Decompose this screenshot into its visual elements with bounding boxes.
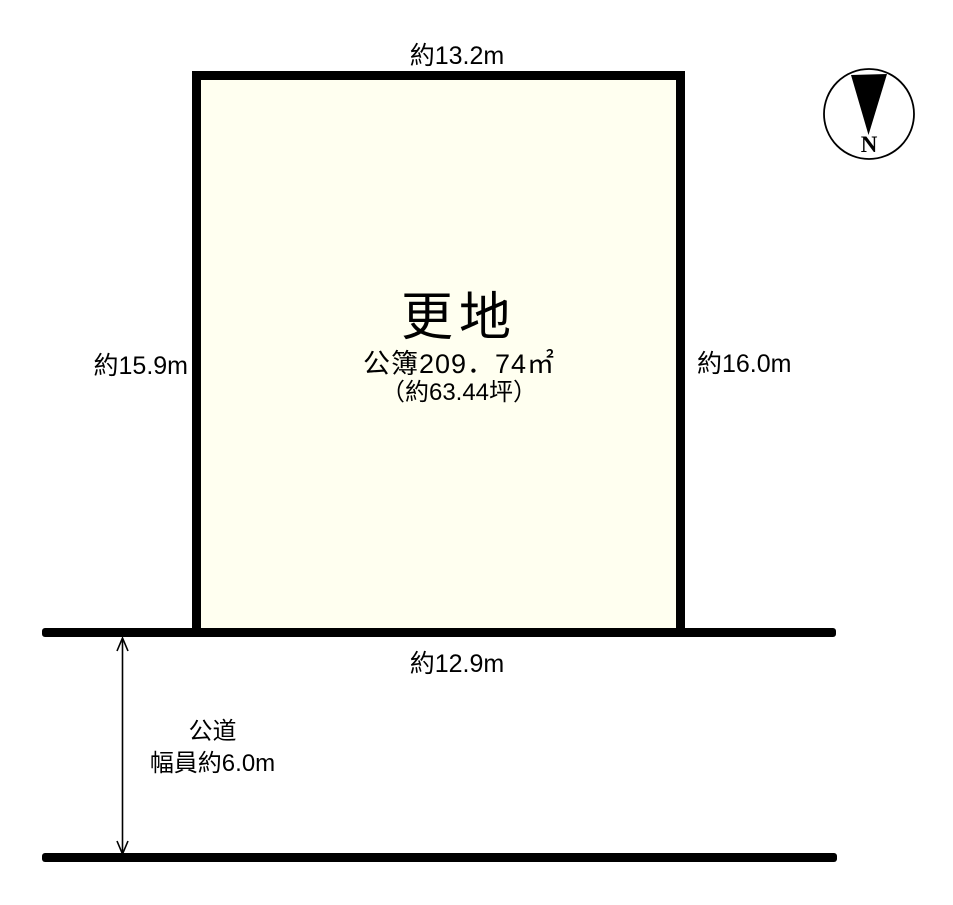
dimension-label-left: 約15.9m xyxy=(30,346,188,382)
road-edge-far-line xyxy=(42,853,837,862)
road-label-block: 公道 幅員約6.0m xyxy=(110,716,315,780)
road-edge-near-line xyxy=(42,628,836,637)
compass-north-label: N xyxy=(861,132,878,157)
road-name: 公道 xyxy=(110,716,315,748)
plot-title: 更地 xyxy=(259,290,659,346)
compass-icon: N xyxy=(822,66,918,162)
plot-area-tsubo: （約63.44坪） xyxy=(259,379,659,406)
site-plan-diagram: 約13.2m 更地 公簿209．74㎡ （約63.44坪） 約15.9m 約16… xyxy=(0,0,953,905)
plot-text-block: 更地 公簿209．74㎡ （約63.44坪） xyxy=(259,290,659,406)
plot-registered-area: 公簿209．74㎡ xyxy=(259,349,659,379)
dimension-label-top: 約13.2m xyxy=(357,36,557,72)
dimension-label-bottom: 約12.9m xyxy=(357,644,557,680)
dimension-label-right: 約16.0m xyxy=(697,344,857,380)
road-width-label: 幅員約6.0m xyxy=(110,748,315,780)
